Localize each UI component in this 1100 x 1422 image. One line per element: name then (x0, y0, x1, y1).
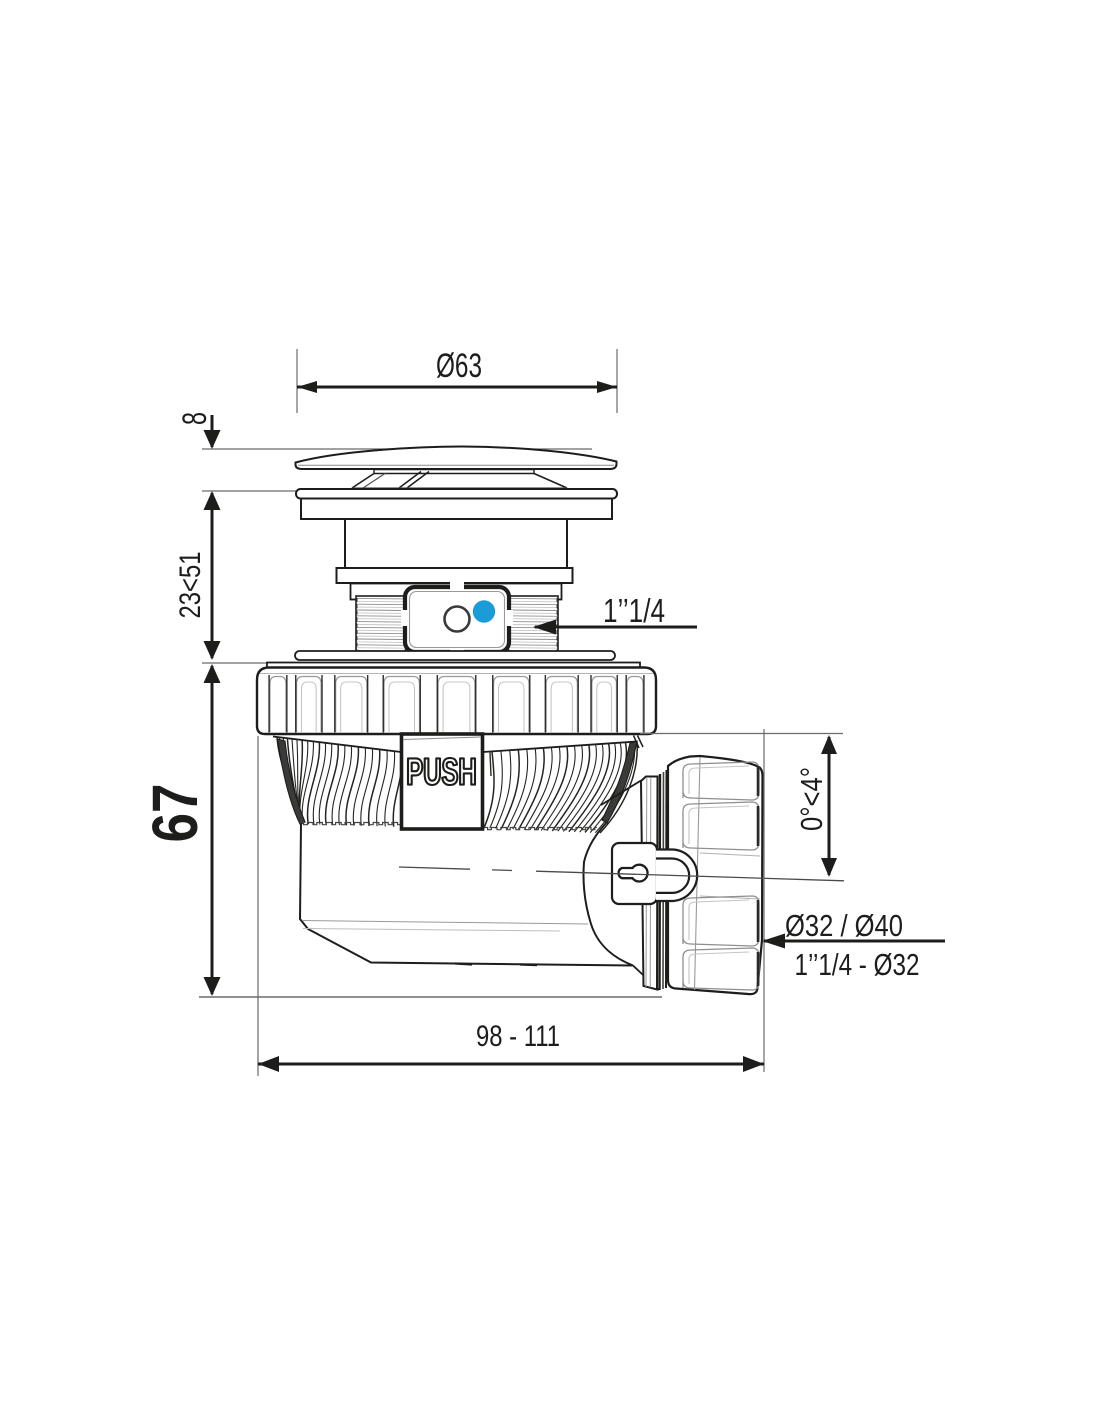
svg-text:1’’1/4 - Ø32: 1’’1/4 - Ø32 (795, 947, 920, 982)
svg-text:0°<4°: 0°<4° (794, 767, 829, 831)
svg-text:Ø32 / Ø40: Ø32 / Ø40 (785, 908, 903, 943)
svg-text:Ø63: Ø63 (436, 347, 482, 385)
svg-text:8: 8 (176, 412, 214, 425)
svg-text:98 - 111: 98 - 111 (476, 1020, 560, 1053)
svg-text:1’’1/4: 1’’1/4 (603, 592, 665, 629)
svg-text:23<51: 23<51 (174, 552, 207, 619)
svg-text:67: 67 (139, 784, 211, 843)
